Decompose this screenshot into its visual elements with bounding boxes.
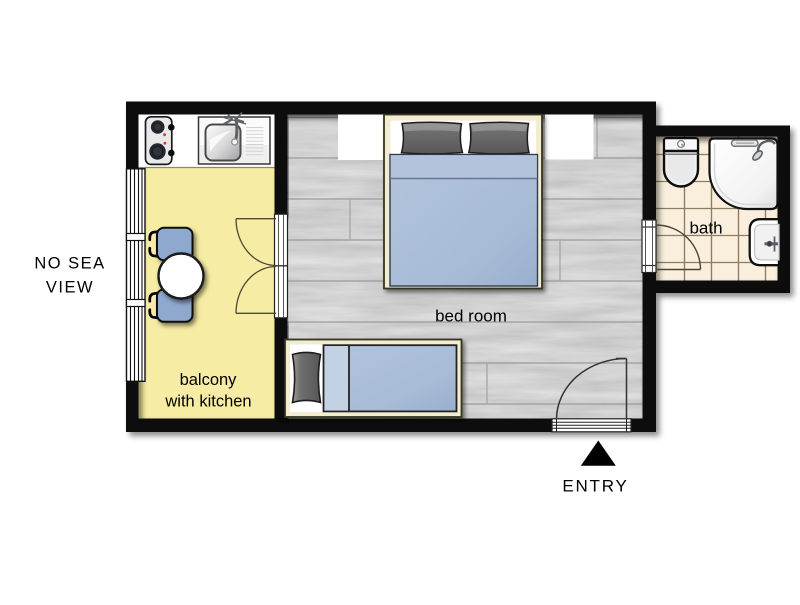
- svg-text:bath: bath: [689, 219, 722, 238]
- svg-text:balcony: balcony: [180, 371, 238, 389]
- svg-text:with kitchen: with kitchen: [164, 393, 251, 411]
- svg-text:ENTRY: ENTRY: [562, 477, 628, 496]
- svg-text:bed room: bed room: [435, 307, 507, 326]
- svg-text:VIEW: VIEW: [46, 279, 94, 297]
- svg-text:NO SEA: NO SEA: [34, 255, 105, 273]
